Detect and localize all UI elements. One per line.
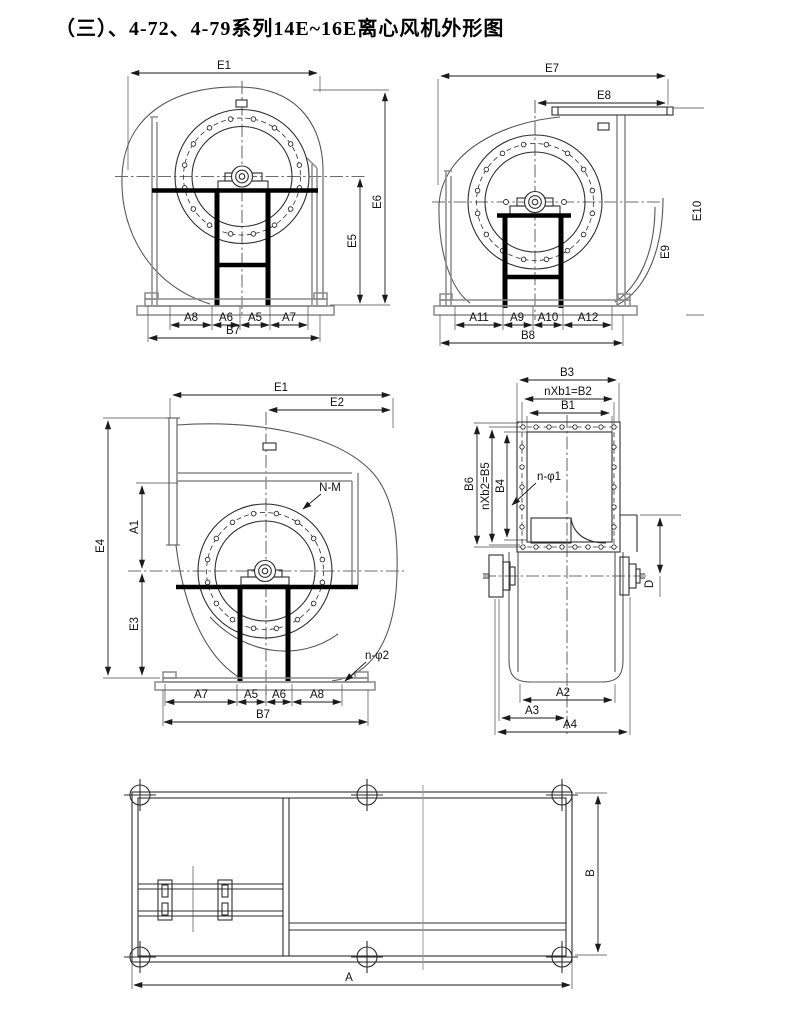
support-frame xyxy=(176,587,358,681)
dim-label-b1: B1 xyxy=(561,400,575,412)
view-outlet-side: n-φ1 B3 nXb1=B2 B1 B6 nXb2=B5 B4 D A2 A3… xyxy=(464,367,681,735)
dim-label-a3: A3 xyxy=(525,705,539,717)
drawing-canvas: E1 E6 E5 A8 A6 A5 A7 B7 xyxy=(0,0,800,1023)
dim-label-e1: E1 xyxy=(217,60,231,72)
dimensions: A B xyxy=(132,793,607,989)
dim-label-a4: A4 xyxy=(563,719,578,731)
inlet-duct-flange xyxy=(169,418,177,545)
flange-corner-bracket xyxy=(620,515,637,552)
dim-label-b: B xyxy=(585,869,597,877)
page: { "title": "（三）、4-72、4-79系列14E~16E离心风机外形… xyxy=(0,0,800,1023)
dim-label-e4: E4 xyxy=(95,538,107,553)
dim-label-a5: A5 xyxy=(244,689,258,701)
base-frame-inner xyxy=(138,798,566,956)
dim-label-b5: nXb2=B5 xyxy=(480,462,492,510)
dim-label-a2: A2 xyxy=(556,687,570,699)
label-n-phi1: n-φ1 xyxy=(537,471,561,483)
dim-label-a7: A7 xyxy=(282,312,296,324)
dim-label-e2: E2 xyxy=(330,397,344,409)
dim-label-e7: E7 xyxy=(545,63,559,75)
lifting-lug xyxy=(598,123,609,130)
dim-label-e9: E9 xyxy=(660,245,672,259)
dim-label-b4: B4 xyxy=(495,478,507,493)
dim-label-b2: nXb1=B2 xyxy=(544,386,592,398)
dim-label-a6: A6 xyxy=(219,312,233,324)
base xyxy=(137,293,334,315)
dim-label-b7: B7 xyxy=(226,325,240,337)
dim-label-a11: A11 xyxy=(469,312,489,324)
volute-tongue-curve xyxy=(571,518,606,543)
support-frame xyxy=(497,216,571,309)
dim-label-a9: A9 xyxy=(510,312,524,324)
housing-side xyxy=(483,552,645,682)
motor-rails xyxy=(138,866,283,932)
lifting-lug xyxy=(263,443,276,450)
dim-label-e8: E8 xyxy=(597,90,611,102)
dim-label-e5: E5 xyxy=(347,234,359,248)
base-frame-outer xyxy=(132,792,572,962)
centerlines xyxy=(432,100,662,320)
label-n-m: N-M xyxy=(319,482,341,494)
dim-label-d: D xyxy=(644,580,656,588)
dimensions: E1 E2 E4 A1 E3 A7 A5 A6 A8 B7 xyxy=(95,382,393,726)
dim-label-e1: E1 xyxy=(274,382,288,394)
dim-label-a5: A5 xyxy=(248,312,262,324)
pedestal xyxy=(241,561,289,586)
leaders: n-φ1 xyxy=(512,471,561,505)
cutoff-block xyxy=(531,518,571,543)
casing-outline xyxy=(122,87,323,305)
dim-label-a6: A6 xyxy=(272,689,286,701)
view-base-plan: A B xyxy=(124,779,607,989)
base xyxy=(434,294,637,315)
frame-cross-member xyxy=(289,923,566,930)
dim-label-b3: B3 xyxy=(560,367,574,379)
view-top-left-fan: E1 E6 E5 A8 A6 A5 A7 B7 xyxy=(115,60,390,342)
frame-divider xyxy=(283,798,289,956)
dim-label-b7: B7 xyxy=(256,709,270,721)
casing-outline xyxy=(166,418,397,681)
dim-label-a1: A1 xyxy=(129,520,141,534)
lifting-lug xyxy=(236,100,247,107)
dim-label-a12: A12 xyxy=(578,312,598,324)
view-middle-left-fan: N-M n-φ2 E1 E2 E4 A1 E3 A7 A5 A6 A8 B7 xyxy=(95,382,404,726)
leaders: N-M n-φ2 xyxy=(303,482,389,681)
dim-label-a7: A7 xyxy=(194,689,208,701)
pedestal xyxy=(504,192,567,216)
dim-label-e3: E3 xyxy=(129,617,141,631)
dim-label-a: A xyxy=(345,972,353,984)
dim-label-e10: E10 xyxy=(692,201,704,221)
label-n-phi2: n-φ2 xyxy=(365,650,389,662)
view-top-right-fan: E7 E8 E10 E9 A11 A9 A10 A12 B8 xyxy=(432,63,704,346)
dim-label-a10: A10 xyxy=(538,312,558,324)
pedestal xyxy=(218,166,268,190)
dim-label-b6: B6 xyxy=(464,477,476,491)
outlet-flange-frame xyxy=(517,422,637,552)
dimensions: E7 E8 E10 E9 A11 A9 A10 A12 B8 xyxy=(438,63,704,346)
dim-label-e6: E6 xyxy=(372,195,384,209)
dim-label-a8: A8 xyxy=(310,689,324,701)
dim-label-a8: A8 xyxy=(184,312,198,324)
outlet-flange xyxy=(552,107,704,315)
dim-label-b8: B8 xyxy=(521,330,535,342)
